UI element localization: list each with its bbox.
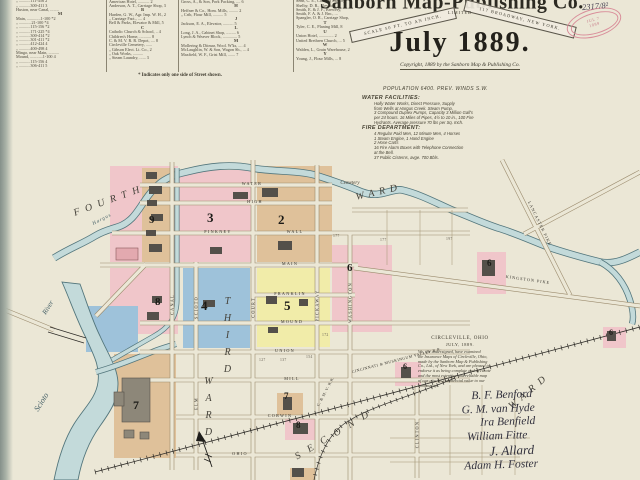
street-label-corwin: CORWIN	[250, 413, 310, 418]
stamp-line-2: 1889	[568, 16, 621, 36]
plat-number: 177	[333, 234, 340, 238]
index-column-specials-a-c: AAmerican Hotel, ........... 2Anderson, …	[106, 0, 178, 72]
ward-label-ward-mid: WARD	[203, 376, 214, 444]
sheet-number-8-depot: 8	[296, 420, 301, 430]
street-label-mill: MILL	[262, 376, 322, 381]
endorsement-signatures: B. F. BenfordG. M. van HydeIra BenfieldW…	[427, 386, 580, 474]
map-date-title: July 1889.	[380, 27, 540, 59]
sheet-number-6-east: 6	[487, 258, 492, 268]
street-label-mound: MOUND	[262, 319, 322, 324]
water-facilities-text: Holly Water Works, Direct Pressure, Supp…	[374, 102, 574, 126]
sheet-number-6-mid: 6	[347, 262, 353, 274]
street-label-wall: WALL	[265, 229, 325, 234]
sheet-number-2: 2	[278, 212, 285, 228]
ward-label-third: THIRD	[222, 296, 233, 381]
creek-label-hargus: Hargus	[92, 213, 113, 227]
cemetery-label: Cemetery	[318, 181, 382, 186]
endorsement-place: CIRCLEVILLE, OHIO	[405, 336, 515, 341]
road-label-kingston-pike: KINGSTON PIKE	[483, 271, 573, 288]
sheet-number-4: 4	[201, 298, 208, 314]
scan-edge-shadow	[0, 0, 13, 480]
street-label-ohio: OHIO	[210, 451, 270, 456]
street-label-court: COURT	[251, 278, 256, 338]
plat-number: 137	[280, 358, 287, 362]
endorsement-paragraph: We, the undersigned, have examinedthe In…	[418, 350, 554, 389]
index-column-streets: High, ...........112-225 2 „ ...........…	[14, 0, 106, 72]
index-column-specials-g-m: GGross, A., & Son, Pork Packing, .... 6H…	[178, 0, 293, 72]
street-label-washington: WASHINGTON	[348, 273, 353, 333]
river-label-scioto: Scioto	[32, 391, 50, 413]
endorsement-date: JULY, 1889.	[405, 342, 515, 347]
street-label-canal: CANAL	[170, 275, 175, 335]
sheet-number-3: 3	[207, 210, 214, 226]
sheet-number-5: 5	[284, 298, 291, 314]
copyright-line: Copyright, 1889 by the Sanborn Map & Pub…	[356, 62, 564, 68]
street-label-water: WATER	[222, 181, 282, 186]
street-label-scioto: SCIOTO	[194, 278, 199, 338]
sanborn-key-map-sheet: High, ...........112-225 2 „ ...........…	[0, 0, 640, 480]
street-label-union: UNION	[255, 348, 315, 353]
street-label-elm: ELM	[194, 374, 199, 434]
street-label-franklin: FRANKLIN	[260, 291, 320, 296]
sheet-number-6-far-east: 6	[609, 328, 613, 337]
sheet-number-7-sw: 7	[133, 398, 139, 413]
plat-number: 177	[380, 238, 387, 242]
plat-number: 154	[306, 355, 313, 359]
limited-label: LIMITED	[441, 10, 479, 15]
sheet-number-6-south: 6	[403, 362, 407, 371]
street-label-high: HIGH	[225, 199, 285, 204]
plat-number: 127	[259, 358, 266, 362]
sheet-number-9: 9	[149, 214, 155, 226]
sheet-number-7-corwin: 7	[284, 391, 289, 401]
street-label-pinkney: PINKNEY	[188, 229, 248, 234]
street-label-pickaway: PICKAWAY	[315, 276, 320, 336]
street-and-specials-index: High, ...........112-225 2 „ ...........…	[14, 0, 356, 72]
plat-number: 197	[446, 237, 453, 241]
sheet-number-8-west: 8	[155, 296, 161, 308]
plat-number: 172	[322, 333, 329, 337]
road-label-lancaster-pike: LANCASTER PIKE	[518, 182, 562, 265]
river-label-river: River	[41, 299, 56, 316]
population-note: POPULATION 6400. PREV. WINDS S.W.	[383, 86, 488, 92]
fire-department-text: 4 Regular Paid Men, 12 Minute Men, 4 Hor…	[374, 132, 574, 160]
street-label-main: MAIN	[260, 261, 320, 266]
index-footnote: * Indicates only one side of Street show…	[60, 73, 300, 78]
